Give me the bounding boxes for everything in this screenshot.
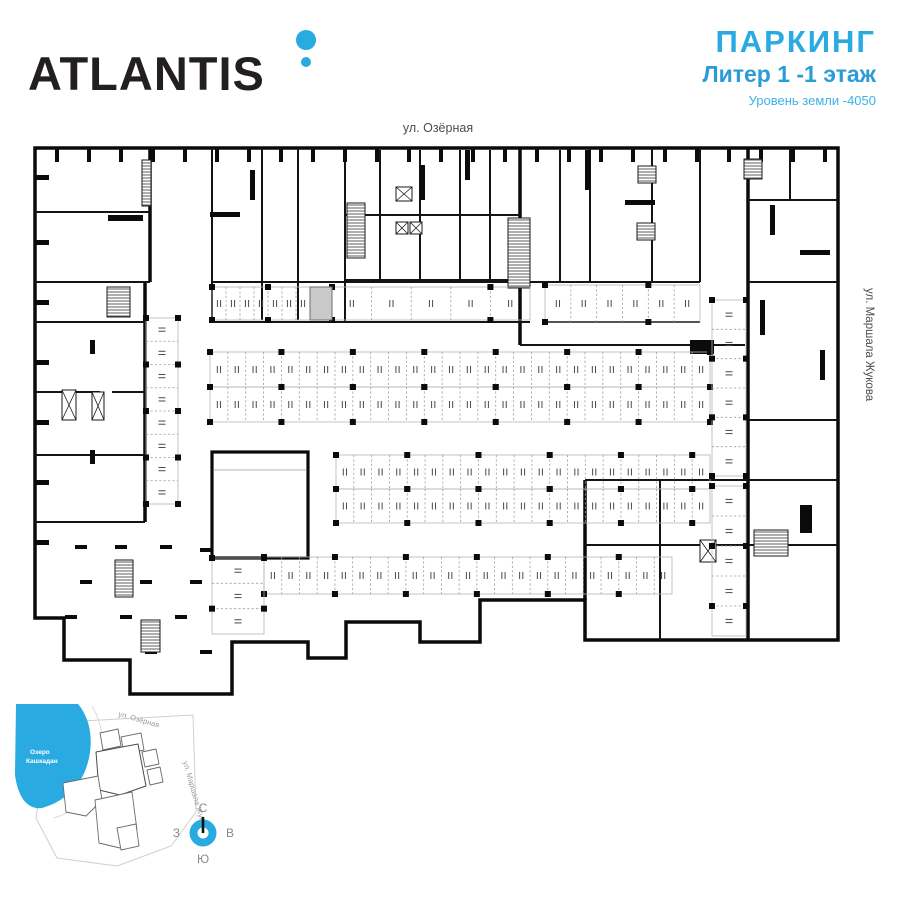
compass-south: Ю xyxy=(197,852,209,866)
highlighted-parking-space[interactable] xyxy=(310,287,332,320)
compass-west: З xyxy=(173,826,180,840)
street-label-right: ул. Маршала Жукова xyxy=(863,288,875,402)
building-outline xyxy=(35,148,838,694)
page: { "header": { "logo": "ATLANTIS", "accen… xyxy=(0,0,900,900)
lake-label-2: Кашкадан xyxy=(26,758,58,765)
highlighted-building xyxy=(96,744,146,795)
site-street-top: ул. Озёрная xyxy=(117,709,160,729)
street-label-top: ул. Озёрная xyxy=(403,121,473,135)
floor-plan: ул. Озёрная ул. Маршала Жукова xyxy=(0,0,900,900)
compass-north: С xyxy=(199,801,208,815)
compass-icon: С Ю З В xyxy=(173,801,234,866)
compass-east: В xyxy=(226,826,234,840)
lake-label-1: Озеро xyxy=(30,749,50,756)
site-map: Озеро Кашкадан ул. Озёрная ул. Маршала Ж… xyxy=(15,704,234,866)
ramp-room xyxy=(212,452,308,558)
